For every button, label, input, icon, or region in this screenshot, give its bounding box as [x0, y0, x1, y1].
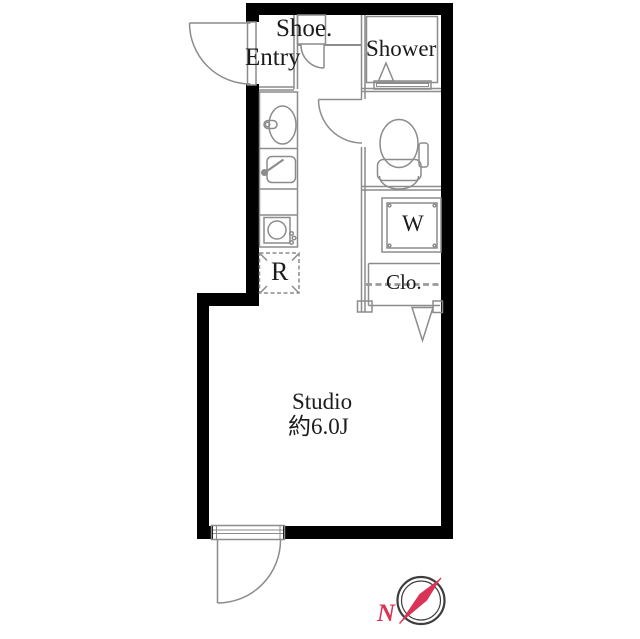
studio-door-sill-lines — [213, 526, 283, 540]
entry-label: Entry — [245, 45, 301, 70]
shower-label: Shower — [366, 37, 436, 60]
sink-icon — [262, 157, 296, 183]
shoe-label: Shoe. — [276, 16, 332, 41]
toilet-door-arc — [319, 100, 363, 144]
washbasin-icon — [264, 106, 296, 144]
basin-faucet-knob — [265, 122, 269, 126]
stove-burner — [268, 221, 286, 239]
wall-right — [441, 3, 453, 539]
closet-door-swing-icon — [412, 308, 433, 341]
shower-head-icon — [379, 63, 394, 81]
stove-knob-3 — [290, 241, 294, 245]
washer-label: W — [402, 212, 424, 235]
room-name-label: Studio — [292, 390, 352, 413]
floor-plan-drawing — [0, 0, 640, 639]
studio-door — [212, 526, 285, 604]
toilet-bowl — [380, 120, 418, 168]
toilet-icon — [378, 120, 429, 190]
compass-north-label: N — [377, 601, 395, 626]
entry-door-arc — [190, 23, 251, 84]
basin-bowl — [269, 106, 296, 144]
wall-top — [246, 3, 453, 15]
floor-plan: Shoe. Entry Shower W Clo. R Studio 約6.0J… — [0, 0, 640, 639]
wall-left-upper-below-door — [246, 84, 259, 306]
stove-knob-1 — [290, 232, 294, 236]
wall-left-lower — [197, 293, 209, 539]
entry-step-line — [259, 87, 294, 90]
hall-door-arc — [301, 45, 324, 68]
closet-label: Clo. — [386, 272, 422, 293]
toilet-tank — [378, 160, 422, 181]
studio-door-arc — [218, 540, 281, 603]
studio-door-sill — [212, 526, 285, 540]
wall-left-upper-above-door — [246, 3, 259, 22]
refrigerator-label: R — [271, 259, 288, 285]
wall-bottom-right-seg — [283, 526, 453, 539]
hall-door — [301, 45, 324, 68]
room-size-label: 約6.0J — [288, 415, 349, 438]
kitchen-counter — [260, 92, 298, 247]
shower-door-sill-inner — [377, 84, 429, 87]
stove-icon — [264, 218, 296, 245]
compass-needle — [400, 578, 442, 624]
stove-knob-2 — [292, 236, 296, 240]
compass-icon — [398, 577, 445, 624]
hall-right-wall — [362, 15, 366, 312]
toilet-door — [319, 100, 363, 144]
sink-faucet-base — [262, 170, 268, 176]
